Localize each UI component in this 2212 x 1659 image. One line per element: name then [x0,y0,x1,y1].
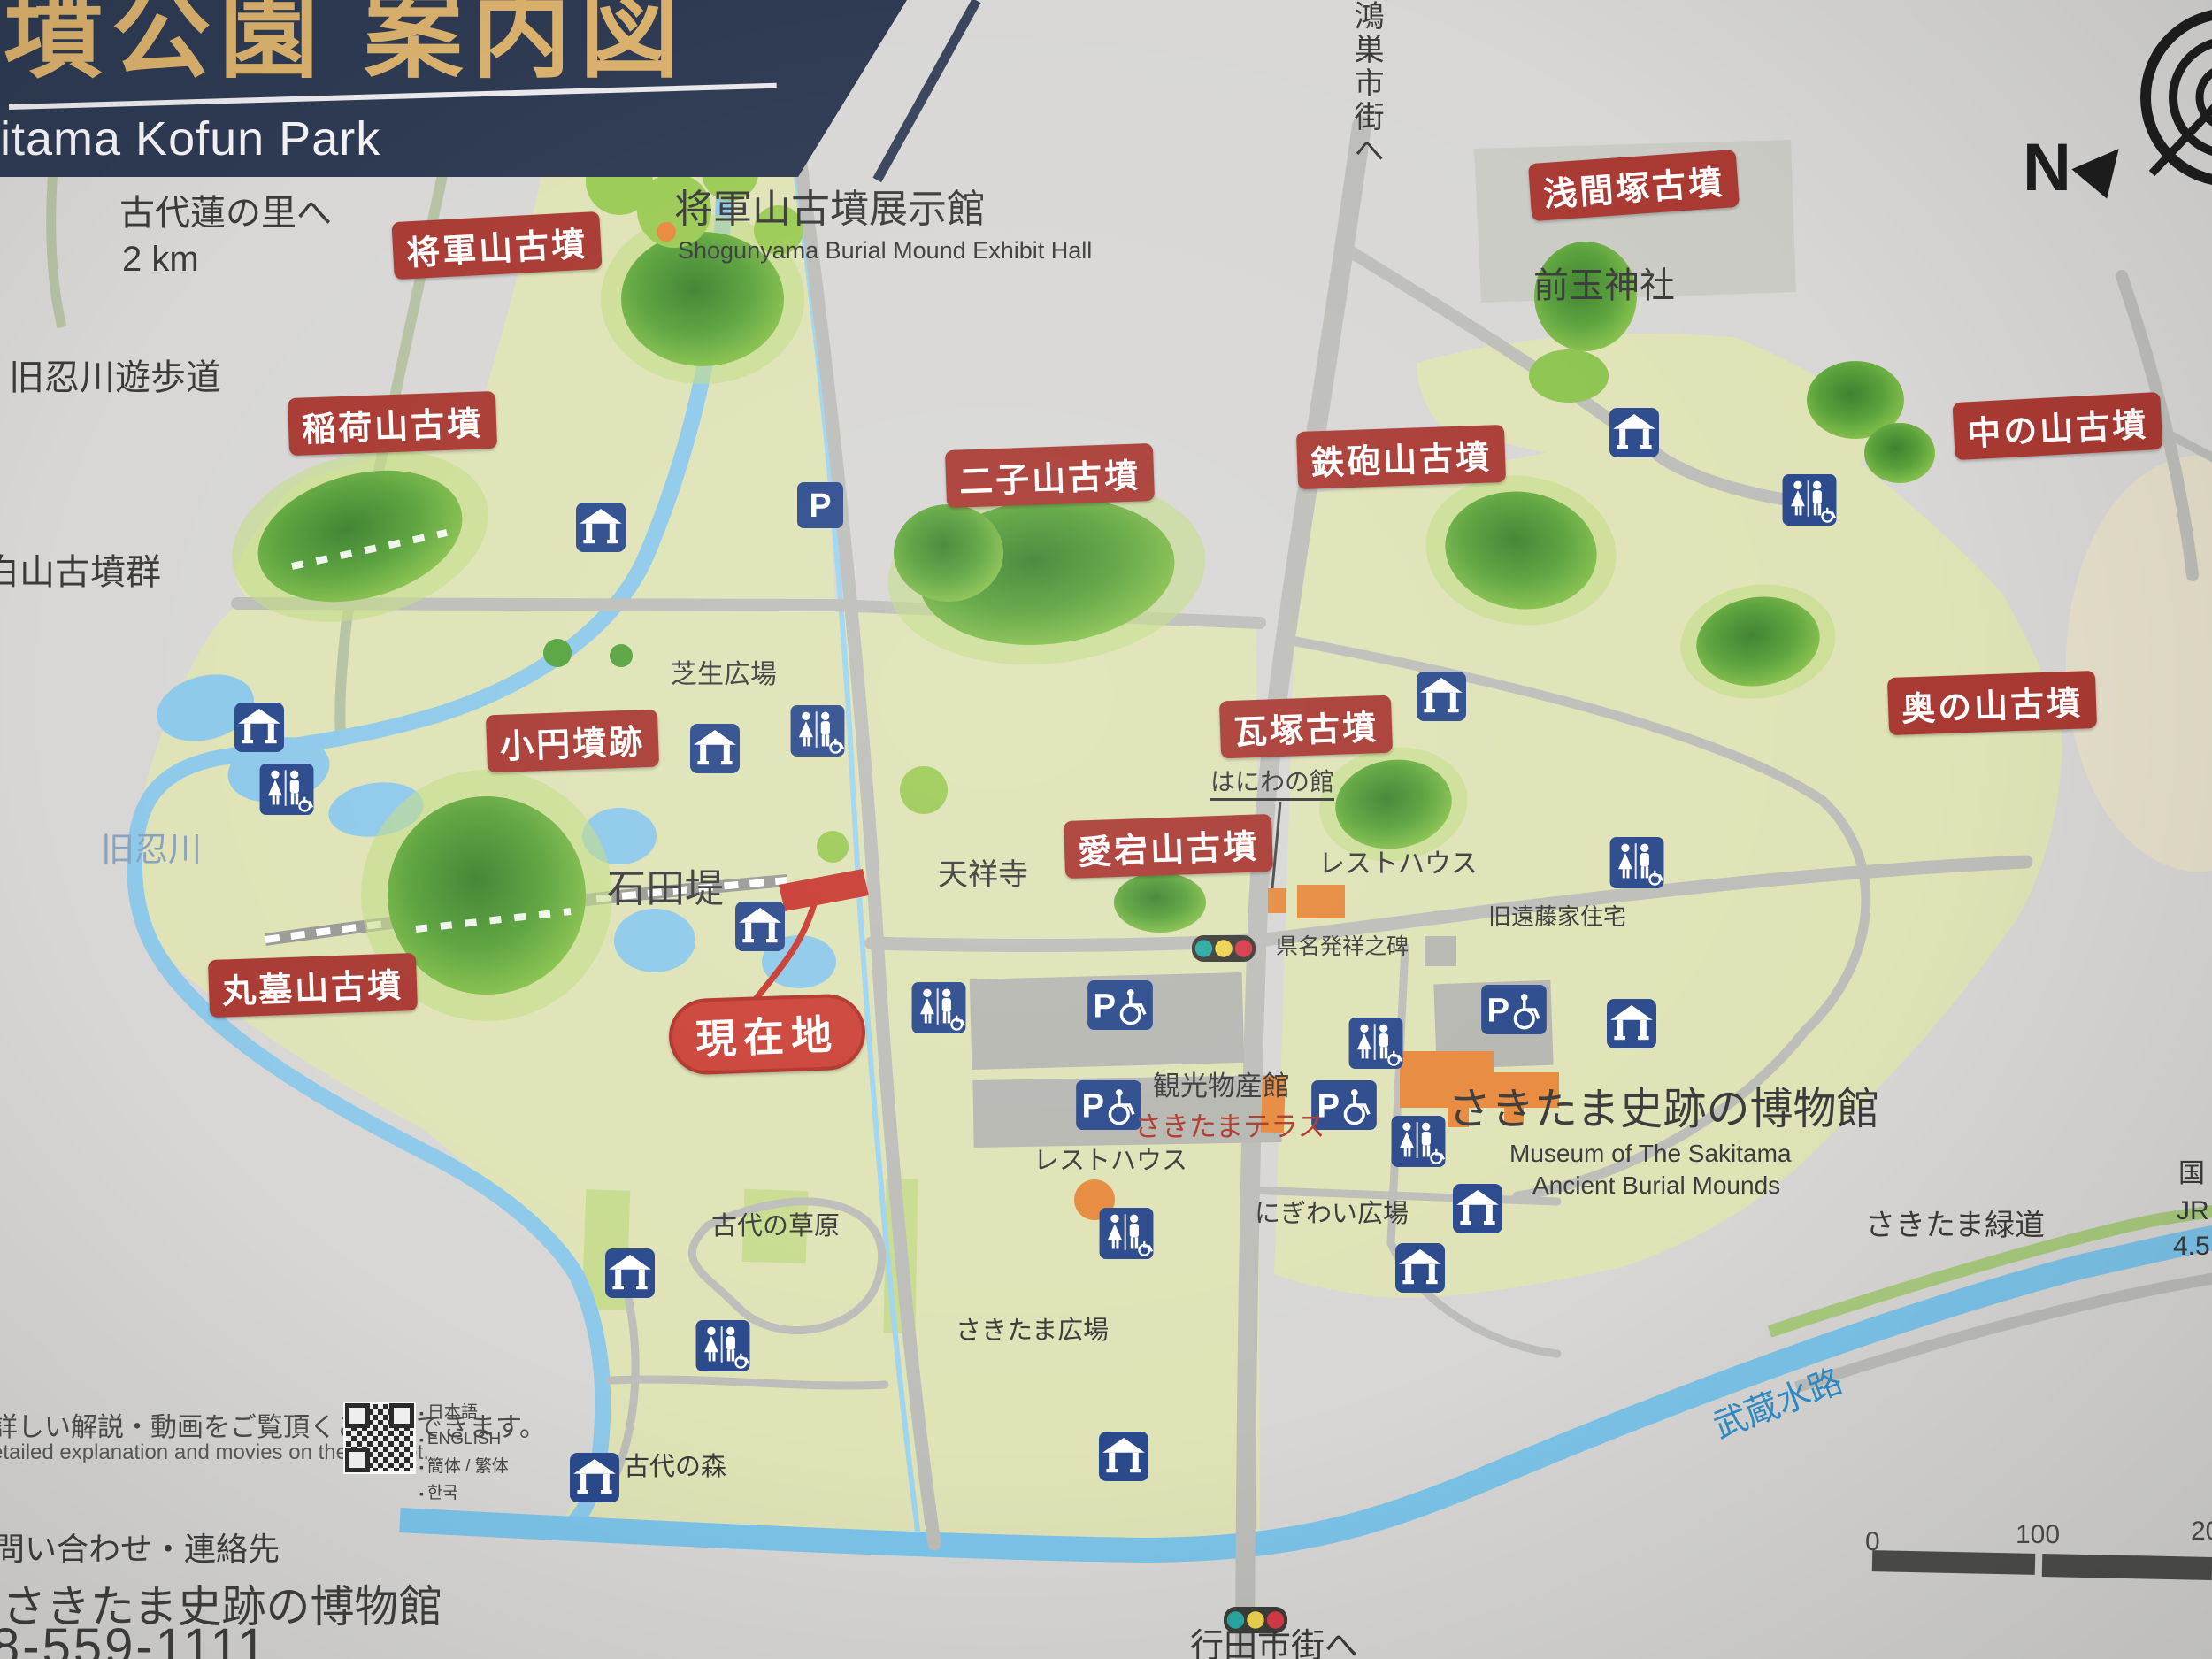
mound-label: 丸墓山古墳 [208,953,418,1018]
rest-house-building [1297,885,1345,918]
place-label: さきたまテラス [1134,1111,1325,1143]
place-label: さきたま緑道 [1865,1209,2045,1243]
place-label: 4.5 [2173,1232,2210,1263]
mound-label: 愛宕山古墳 [1064,814,1273,879]
toilet-icon [1609,837,1664,888]
parking-icon: P [797,482,843,528]
shelter-gazebo-icon [1609,408,1659,457]
place-label: 石田堤 [607,867,724,912]
shelter-gazebo-icon [576,503,626,552]
place-label: JR [2177,1196,2209,1227]
place-label: 県名発祥之碑 [1276,934,1409,960]
place-label: 白山古墳群 [0,552,161,593]
place-label: 将軍山古墳展示館 [674,188,986,233]
sign-header: 墳公園 案内図 itama Kofun Park [0,0,907,177]
atagoyama-mound [1114,872,1206,933]
toilet-icon [1782,474,1837,526]
language-item: ENGLISH [419,1426,509,1453]
place-label: 天祥寺 [938,858,1028,893]
mound-label: 奥の山古墳 [1887,671,2097,735]
scalebar-segment [2042,1554,2212,1580]
scalebar-segment [1872,1550,2035,1575]
shelter-gazebo-icon [1395,1243,1445,1293]
shelter-gazebo-icon [1453,1184,1502,1233]
svg-text:P: P [1094,987,1117,1025]
haniwa-hall-building [1268,888,1286,913]
place-label: 2 km [122,239,199,280]
place-label: レストハウス [1318,849,1478,880]
mound-label: 鉄砲山古墳 [1296,425,1506,489]
exhibit-hall-marker [657,222,676,242]
qr-code-icon [343,1402,416,1474]
maruhakayama-mound [388,796,586,995]
place-label: レストハウス [1033,1147,1187,1176]
place-label: 旧忍川 [101,832,202,871]
place-label: 芝生広場 [671,660,777,691]
toilet-icon [911,982,966,1033]
scalebar-tick-200: 20 [2191,1517,2212,1547]
place-label: 行田市街へ [1190,1628,1358,1659]
shelter-gazebo-icon [234,703,284,752]
compass-north-label: N [2023,129,2071,206]
toilet-icon [1348,1018,1403,1069]
shelter-gazebo-icon [570,1453,619,1502]
toilet-icon [1099,1208,1154,1259]
accessible-parking-icon: P [1075,1080,1142,1130]
language-item: 簡体 / 繁体 [419,1454,509,1480]
language-item: 한국 [419,1480,509,1507]
traffic-light-icon [1192,935,1256,962]
mound-label: 小円墳跡 [486,710,659,773]
shelter-gazebo-icon [1099,1432,1148,1481]
accessible-parking-icon: P [1087,980,1154,1030]
mound-label: 二子山古墳 [945,443,1155,508]
place-label: はにわの館 [1210,768,1334,801]
place-label: 古代蓮の里へ [119,193,332,234]
svg-text:P: P [809,487,831,524]
place-label: 観光物産館 [1153,1071,1290,1102]
place-label: 古代の草原 [711,1212,840,1241]
place-label: 古代の森 [624,1453,726,1482]
toilet-icon [1391,1116,1446,1167]
place-label: Ancient Burial Mounds [1532,1171,1780,1200]
mound-label: 稲荷山古墳 [288,391,497,456]
compass-icon [2146,13,2212,181]
place-label: 国 [2178,1159,2205,1190]
accessible-parking-icon: P [1480,985,1548,1034]
mound-label: 瓦塚古墳 [1219,695,1393,759]
current-location-badge: 現在地 [668,993,867,1076]
shelter-gazebo-icon [690,724,740,773]
place-label: 鴻巣市街へ [1348,0,1383,168]
park-map-sign: 墳公園 案内図 itama Kofun Park N 現在地 詳しい解説・動画を… [0,0,2212,1659]
shelter-gazebo-icon [1417,672,1466,721]
place-label: 前玉神社 [1533,265,1675,306]
language-item: 日本語 [419,1400,509,1426]
place-label: さきたま史跡の博物館 [1448,1085,1880,1134]
contact-phone: 8-559-1111 [0,1617,269,1659]
place-label: 旧遠藤家住宅 [1488,904,1626,931]
toilet-icon [790,705,845,757]
contact-heading: 問い合わせ・連絡先 [0,1524,280,1570]
place-label: にぎわい広場 [1255,1200,1409,1229]
toilet-icon [695,1320,750,1371]
shelter-gazebo-icon [1607,999,1656,1048]
toilet-icon [259,764,314,815]
svg-text:P: P [1487,991,1510,1029]
place-label: 旧忍川遊歩道 [9,357,221,398]
mound-label: 中の山古墳 [1952,392,2162,460]
place-label: Museum of The Sakitama [1509,1140,1792,1168]
shelter-gazebo-icon [735,902,785,951]
sign-title-english: itama Kofun Park [0,111,380,166]
place-label: さきたま広場 [956,1317,1109,1346]
shelter-gazebo-icon [605,1248,655,1298]
sign-title-japanese: 墳公園 案内図 [4,0,687,97]
language-list: 日本語ENGLISH簡体 / 繁体한국 [419,1400,509,1508]
place-label: Shogunyama Burial Mound Exhibit Hall [678,237,1092,265]
scalebar-tick-100: 100 [2016,1520,2060,1550]
svg-text:P: P [1082,1087,1105,1125]
mound-label: 将軍山古墳 [391,211,602,280]
